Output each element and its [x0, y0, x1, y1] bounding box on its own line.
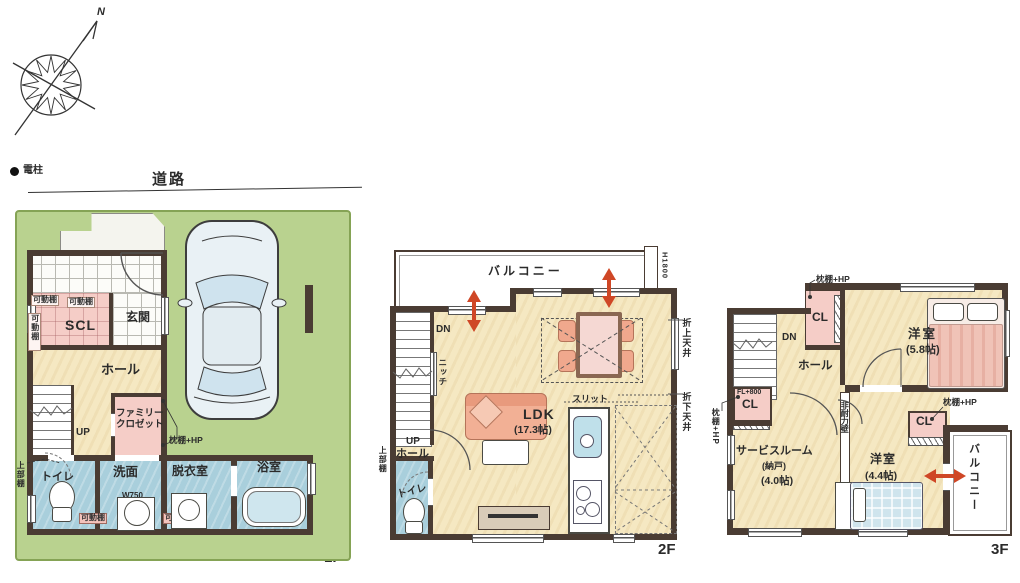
north-label: N: [97, 6, 105, 19]
floor-plan-sheet: N 電柱 道路 1F 2F 3F: [0, 0, 1020, 583]
power-pole-label: 電柱: [23, 165, 43, 177]
power-pole-icon: [10, 167, 19, 176]
floor-plan-2f: バルコニー H1800: [388, 240, 693, 570]
jobudana-label-2f: 上部棚: [378, 446, 387, 473]
road-label: 道路: [152, 171, 186, 188]
f2-annotations: [388, 240, 693, 570]
floor-plan-3f: DN 枕棚+HP CL 洋室 (5.8帖) ホール FL+800 CL 枕棚+H…: [710, 275, 1020, 570]
road-line: [28, 187, 362, 193]
f3-annotations: [710, 275, 1020, 570]
floor-plan-1f: 可動棚 可動棚 可動棚 可動棚 可動棚 SCL 玄関 ホール UP ファミリー …: [15, 195, 360, 575]
compass-rose: [5, 5, 125, 145]
f1-annotations: [15, 195, 360, 575]
